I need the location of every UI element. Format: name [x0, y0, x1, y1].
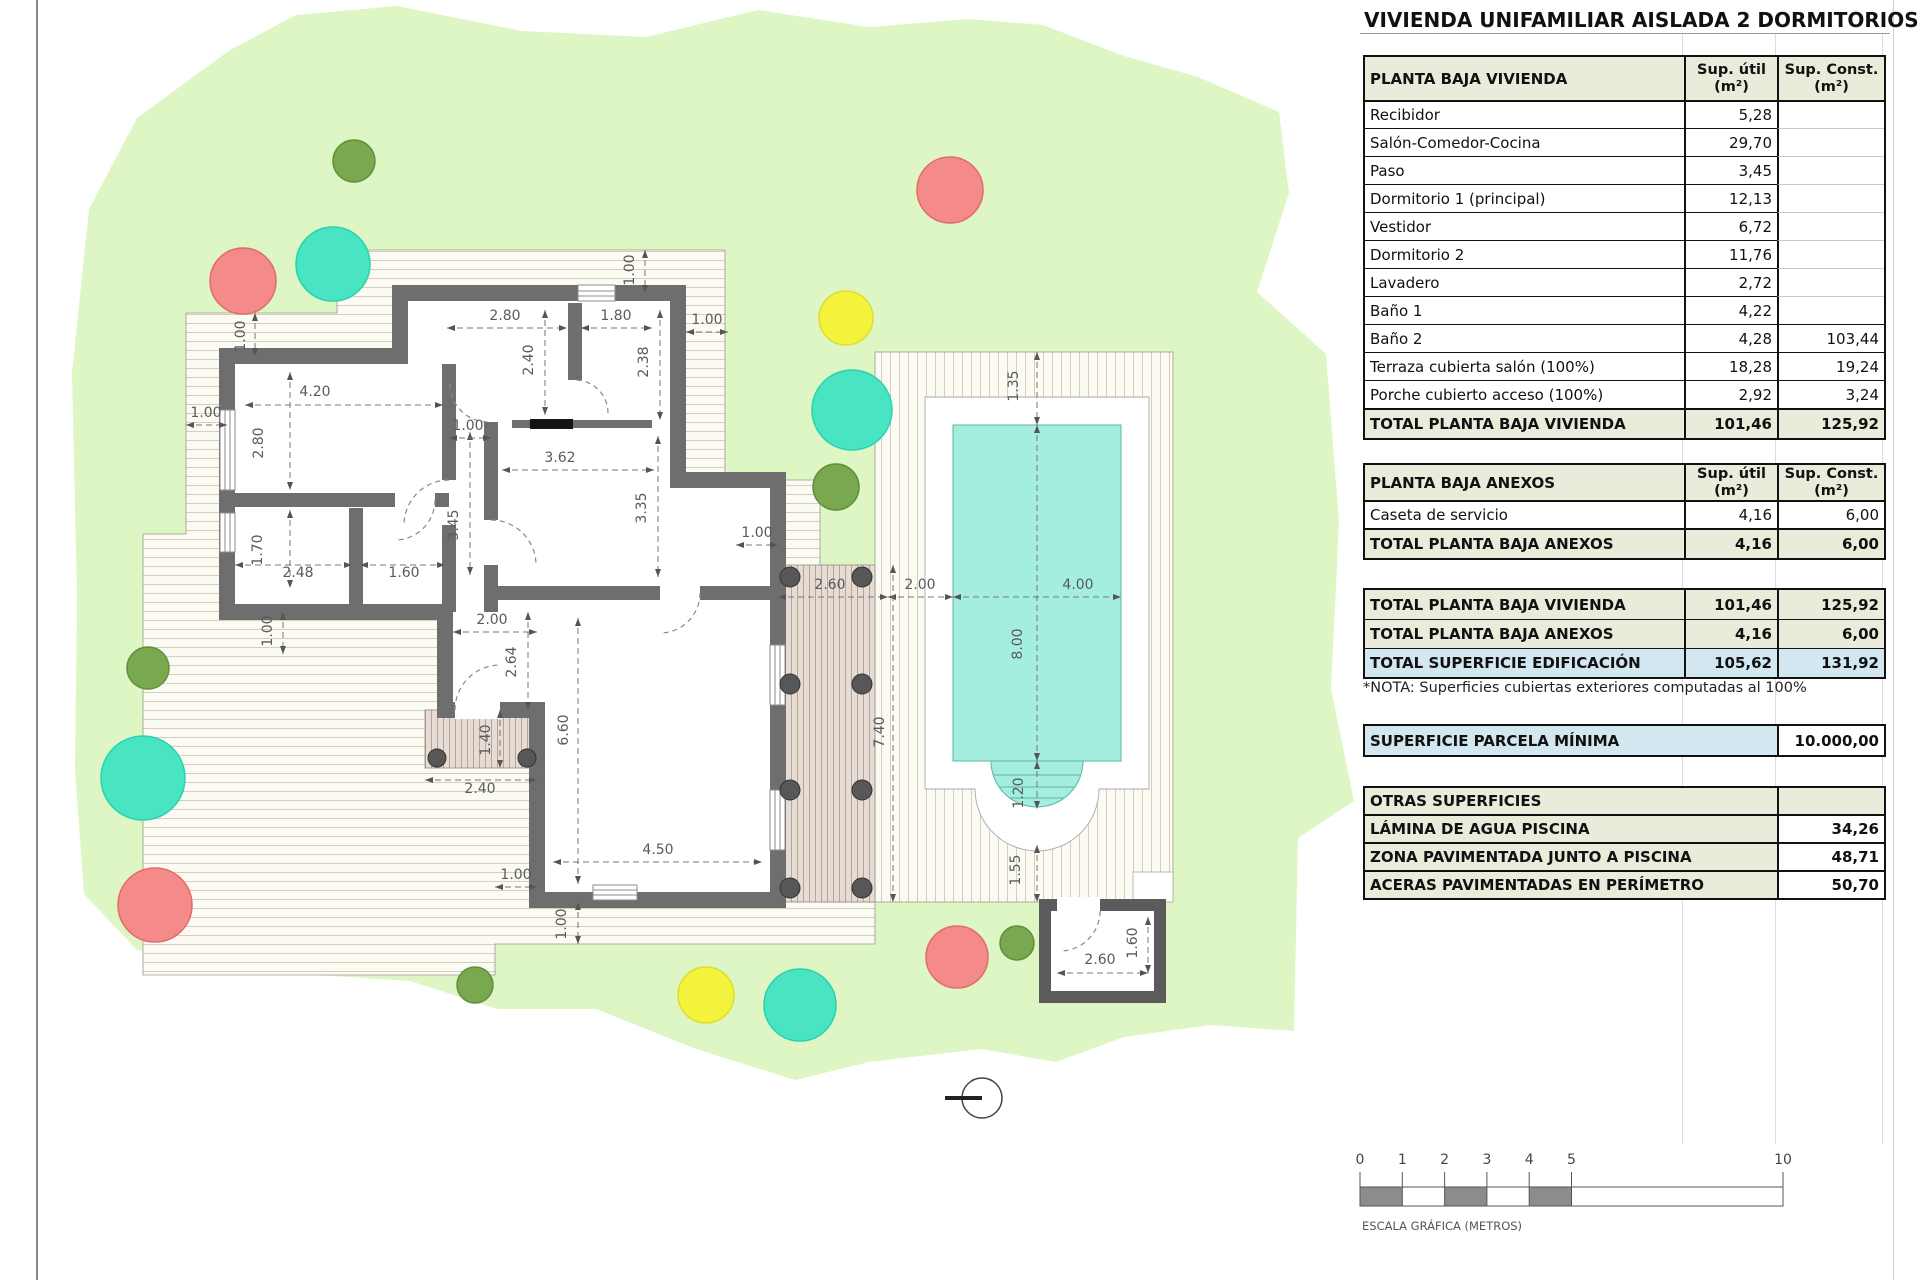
pool-zone-notch	[1133, 872, 1173, 902]
table-cell: 103,44	[1777, 324, 1884, 352]
table-cell: 4,16	[1684, 500, 1777, 528]
table-cell: ACERAS PAVIMENTADAS EN PERÍMETRO	[1365, 870, 1777, 898]
dimension-label: 2.60	[814, 577, 845, 593]
table-cell	[1777, 156, 1884, 184]
table-cell: 18,28	[1684, 352, 1777, 380]
tree-teal	[764, 969, 836, 1041]
table-row: Caseta de servicio4,166,00	[1365, 500, 1884, 528]
dimension-label: 1.00	[233, 320, 249, 351]
table-row: LÁMINA DE AGUA PISCINA34,26	[1365, 814, 1884, 842]
table-cell: Sup. Const. (m²)	[1777, 57, 1884, 100]
tree-red	[210, 248, 276, 314]
table-otras-superficies: OTRAS SUPERFICIESLÁMINA DE AGUA PISCINA3…	[1363, 786, 1886, 900]
tree-red	[926, 926, 988, 988]
table-cell: Baño 1	[1365, 296, 1684, 324]
table-row: SUPERFICIE PARCELA MÍNIMA10.000,00	[1365, 726, 1884, 755]
dimension-label: 2.64	[504, 646, 520, 677]
tree-green	[127, 647, 169, 689]
table-cell: 2,92	[1684, 380, 1777, 408]
dimension-label: 2.00	[904, 577, 935, 593]
table-row: Vestidor6,72	[1365, 212, 1884, 240]
table-cell: SUPERFICIE PARCELA MÍNIMA	[1365, 726, 1777, 755]
dimension-label: 3.45	[446, 509, 462, 540]
table-cell: TOTAL PLANTA BAJA ANEXOS	[1365, 619, 1684, 648]
scale-tick-label: 2	[1440, 1152, 1449, 1168]
scale-bar-caption: ESCALA GRÁFICA (METROS)	[1362, 1218, 1522, 1233]
table-cell	[1777, 296, 1884, 324]
table-row: TOTAL PLANTA BAJA VIVIENDA101,46125,92	[1365, 408, 1884, 438]
table-cell: 125,92	[1777, 408, 1884, 438]
table-cell	[1777, 240, 1884, 268]
table-cell: Vestidor	[1365, 212, 1684, 240]
table-cell: TOTAL PLANTA BAJA VIVIENDA	[1365, 590, 1684, 619]
dimension-label: 2.40	[464, 781, 495, 797]
table-row: OTRAS SUPERFICIES	[1365, 788, 1884, 814]
dimension-label: 2.60	[1084, 952, 1115, 968]
dimension-label: 1.00	[691, 312, 722, 328]
table-cell: 34,26	[1777, 814, 1884, 842]
scale-tick-label: 1	[1398, 1152, 1407, 1168]
table-cell: Lavadero	[1365, 268, 1684, 296]
scale-tick-label: 3	[1482, 1152, 1491, 1168]
sheet-border-right	[1893, 0, 1894, 1280]
table-cell	[1777, 184, 1884, 212]
tree-teal	[812, 370, 892, 450]
table-cell	[1777, 268, 1884, 296]
scale-bar: 01234510ESCALA GRÁFICA (METROS)	[1356, 1152, 1792, 1233]
table-cell: LÁMINA DE AGUA PISCINA	[1365, 814, 1777, 842]
table-cell: Porche cubierto acceso (100%)	[1365, 380, 1684, 408]
table-cell	[1777, 128, 1884, 156]
tree-green	[1000, 926, 1034, 960]
table-cell: 10.000,00	[1777, 726, 1884, 755]
table-row: Recibidor5,28	[1365, 100, 1884, 128]
table-cell: 48,71	[1777, 842, 1884, 870]
table-cell: Caseta de servicio	[1365, 500, 1684, 528]
north-indicator	[945, 1078, 1002, 1118]
table-cell: Recibidor	[1365, 100, 1684, 128]
table-row: Porche cubierto acceso (100%)2,923,24	[1365, 380, 1884, 408]
tree-red	[118, 868, 192, 942]
table-cell	[1777, 212, 1884, 240]
dimension-label: 1.60	[1125, 927, 1141, 958]
dimension-label: 3.35	[634, 492, 650, 523]
table-row: PLANTA BAJA VIVIENDASup. útil (m²)Sup. C…	[1365, 57, 1884, 100]
table-cell: 125,92	[1777, 590, 1884, 619]
table-row: Dormitorio 1 (principal)12,13	[1365, 184, 1884, 212]
dimension-label: 1.00	[260, 615, 276, 646]
table-cell	[1777, 100, 1884, 128]
table-cell: 131,92	[1777, 648, 1884, 677]
tree-yellow	[819, 291, 873, 345]
dimension-label: 3.62	[544, 450, 575, 466]
table-row: Baño 14,22	[1365, 296, 1884, 324]
table-cell: 12,13	[1684, 184, 1777, 212]
tree-green	[333, 140, 375, 182]
pergola-deck	[778, 565, 875, 902]
dimension-label: 1.00	[190, 405, 221, 421]
dimension-label: 1.00	[500, 867, 531, 883]
table-cell: Sup. útil (m²)	[1684, 465, 1777, 500]
dimension-label: 4.00	[1062, 577, 1093, 593]
nota-text: *NOTA: Superficies cubiertas exteriores …	[1363, 680, 1807, 696]
sheet-border-left	[36, 0, 38, 1280]
service-shed	[1045, 897, 1160, 997]
dimension-label: 1.55	[1008, 854, 1024, 885]
table-cell: 4,16	[1684, 528, 1777, 558]
dimension-label: 1.60	[388, 565, 419, 581]
entry-door-leaf	[530, 419, 573, 429]
table-cell: 101,46	[1684, 408, 1777, 438]
table-cell: Dormitorio 1 (principal)	[1365, 184, 1684, 212]
dimension-label: 1.00	[554, 908, 570, 939]
table-cell: PLANTA BAJA VIVIENDA	[1365, 57, 1684, 100]
table-totals-summary: TOTAL PLANTA BAJA VIVIENDA101,46125,92TO…	[1363, 588, 1886, 679]
tree-yellow	[678, 967, 734, 1023]
dimension-label: 2.80	[251, 427, 267, 458]
table-cell: 105,62	[1684, 648, 1777, 677]
table-row: Baño 24,28103,44	[1365, 324, 1884, 352]
dimension-label: 1.20	[1011, 777, 1027, 808]
table-parcela-minima: SUPERFICIE PARCELA MÍNIMA10.000,00	[1363, 724, 1886, 757]
dimension-label: 7.40	[872, 716, 888, 747]
table-cell: 29,70	[1684, 128, 1777, 156]
page-title: VIVIENDA UNIFAMILIAR AISLADA 2 DORMITORI…	[1364, 8, 1890, 32]
table-row: ACERAS PAVIMENTADAS EN PERÍMETRO50,70	[1365, 870, 1884, 898]
table-cell: TOTAL PLANTA BAJA ANEXOS	[1365, 528, 1684, 558]
tree-teal	[101, 736, 185, 820]
table-planta-baja-anexos: PLANTA BAJA ANEXOSSup. útil (m²)Sup. Con…	[1363, 463, 1886, 560]
table-cell: OTRAS SUPERFICIES	[1365, 788, 1777, 814]
dimension-label: 1.00	[452, 418, 483, 434]
table-cell: 6,00	[1777, 500, 1884, 528]
table-cell: Sup. útil (m²)	[1684, 57, 1777, 100]
table-planta-baja-vivienda: PLANTA BAJA VIVIENDASup. útil (m²)Sup. C…	[1363, 55, 1886, 440]
dimension-label: 2.40	[521, 344, 537, 375]
dimension-label: 1.70	[250, 534, 266, 565]
dimension-label: 8.00	[1010, 628, 1026, 659]
dimension-label: 2.00	[476, 612, 507, 628]
table-cell: 19,24	[1777, 352, 1884, 380]
dimension-label: 2.38	[636, 346, 652, 377]
page: { "title": "VIVIENDA UNIFAMILIAR AISLADA…	[0, 0, 1920, 1280]
table-cell: Salón-Comedor-Cocina	[1365, 128, 1684, 156]
table-row: Dormitorio 211,76	[1365, 240, 1884, 268]
table-cell	[1777, 788, 1884, 814]
table-cell: 101,46	[1684, 590, 1777, 619]
table-row: Lavadero2,72	[1365, 268, 1884, 296]
table-cell: 6,00	[1777, 619, 1884, 648]
tree-red	[917, 157, 983, 223]
dimension-label: 4.50	[642, 842, 673, 858]
tree-green	[457, 967, 493, 1003]
table-cell: ZONA PAVIMENTADA JUNTO A PISCINA	[1365, 842, 1777, 870]
table-row: ZONA PAVIMENTADA JUNTO A PISCINA48,71	[1365, 842, 1884, 870]
dimension-label: 1.35	[1006, 370, 1022, 401]
table-cell: Sup. Const. (m²)	[1777, 465, 1884, 500]
dimension-label: 1.80	[600, 308, 631, 324]
table-cell: 3,45	[1684, 156, 1777, 184]
table-cell: 3,24	[1777, 380, 1884, 408]
table-cell: TOTAL SUPERFICIE EDIFICACIÓN	[1365, 648, 1684, 677]
tree-teal	[296, 227, 370, 301]
table-cell: 11,76	[1684, 240, 1777, 268]
table-row: Terraza cubierta salón (100%)18,2819,24	[1365, 352, 1884, 380]
dimension-label: 1.00	[741, 525, 772, 541]
table-cell: PLANTA BAJA ANEXOS	[1365, 465, 1684, 500]
table-cell: 5,28	[1684, 100, 1777, 128]
table-cell: 4,16	[1684, 619, 1777, 648]
title-rule	[1360, 33, 1890, 34]
dimension-label: 2.48	[282, 565, 313, 581]
table-cell: Baño 2	[1365, 324, 1684, 352]
dimension-label: 4.20	[299, 384, 330, 400]
dimension-label: 6.60	[556, 714, 572, 745]
table-cell: 6,00	[1777, 528, 1884, 558]
scale-tick-label: 0	[1356, 1152, 1365, 1168]
dimension-label: 2.80	[489, 308, 520, 324]
table-row: Paso3,45	[1365, 156, 1884, 184]
table-cell: Paso	[1365, 156, 1684, 184]
dimension-label: 1.40	[478, 724, 494, 755]
dimension-label: 1.00	[622, 254, 638, 285]
table-cell: 4,22	[1684, 296, 1777, 324]
table-row: TOTAL PLANTA BAJA ANEXOS4,166,00	[1365, 619, 1884, 648]
scale-tick-label: 10	[1774, 1152, 1792, 1168]
table-cell: 50,70	[1777, 870, 1884, 898]
table-cell: Terraza cubierta salón (100%)	[1365, 352, 1684, 380]
table-row: TOTAL SUPERFICIE EDIFICACIÓN105,62131,92	[1365, 648, 1884, 677]
table-row: TOTAL PLANTA BAJA ANEXOS4,166,00	[1365, 528, 1884, 558]
table-row: Salón-Comedor-Cocina29,70	[1365, 128, 1884, 156]
table-cell: 6,72	[1684, 212, 1777, 240]
tree-green	[813, 464, 859, 510]
table-row: TOTAL PLANTA BAJA VIVIENDA101,46125,92	[1365, 590, 1884, 619]
table-cell: Dormitorio 2	[1365, 240, 1684, 268]
table-cell: TOTAL PLANTA BAJA VIVIENDA	[1365, 408, 1684, 438]
scale-tick-label: 4	[1525, 1152, 1534, 1168]
table-cell: 2,72	[1684, 268, 1777, 296]
scale-tick-label: 5	[1567, 1152, 1576, 1168]
table-cell: 4,28	[1684, 324, 1777, 352]
table-row: PLANTA BAJA ANEXOSSup. útil (m²)Sup. Con…	[1365, 465, 1884, 500]
